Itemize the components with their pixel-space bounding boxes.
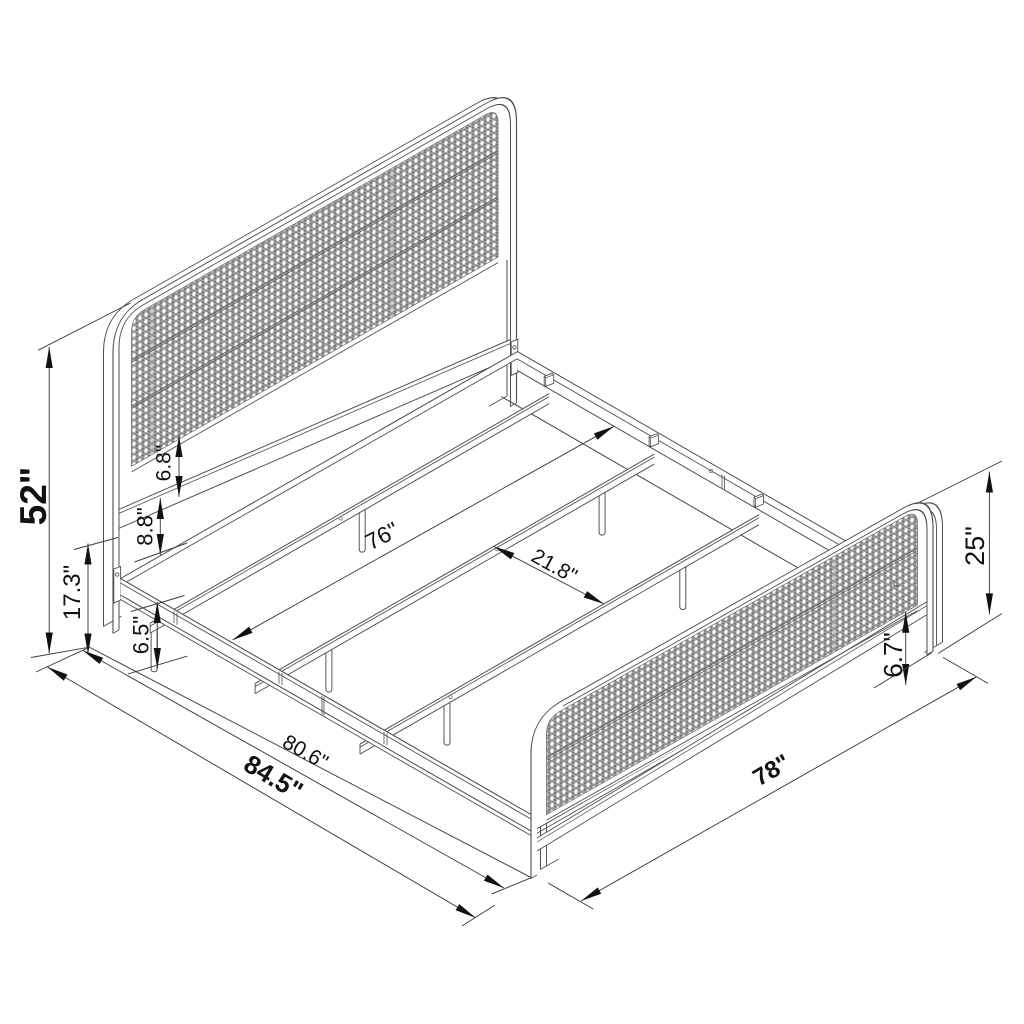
svg-text:6.8": 6.8"	[153, 445, 176, 482]
svg-text:6.5": 6.5"	[129, 616, 154, 654]
svg-text:8.8": 8.8"	[132, 507, 157, 545]
svg-text:17.3": 17.3"	[59, 565, 86, 620]
svg-text:6.7": 6.7"	[878, 632, 908, 677]
svg-text:52": 52"	[13, 467, 54, 526]
svg-text:25": 25"	[960, 526, 990, 566]
